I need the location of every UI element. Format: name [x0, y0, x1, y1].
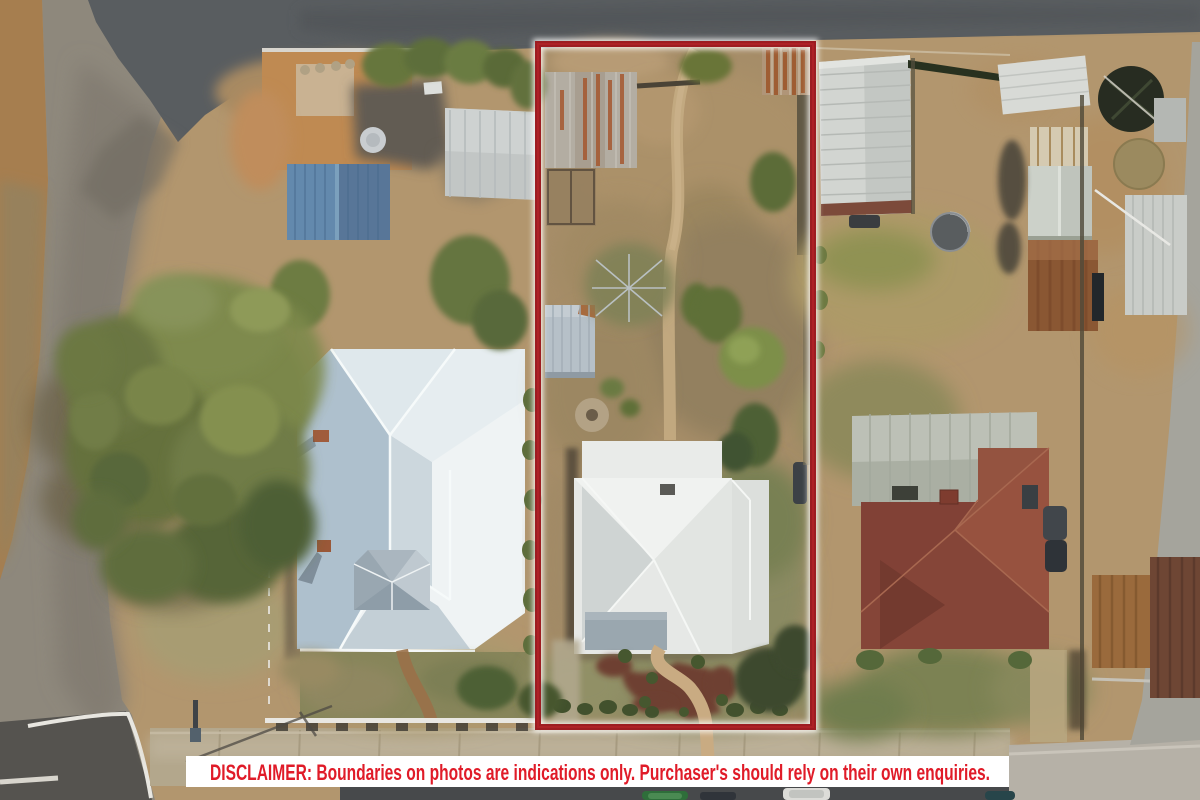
svg-text:DISCLAIMER: Boundaries on phot: DISCLAIMER: Boundaries on photos are ind… [210, 760, 990, 785]
